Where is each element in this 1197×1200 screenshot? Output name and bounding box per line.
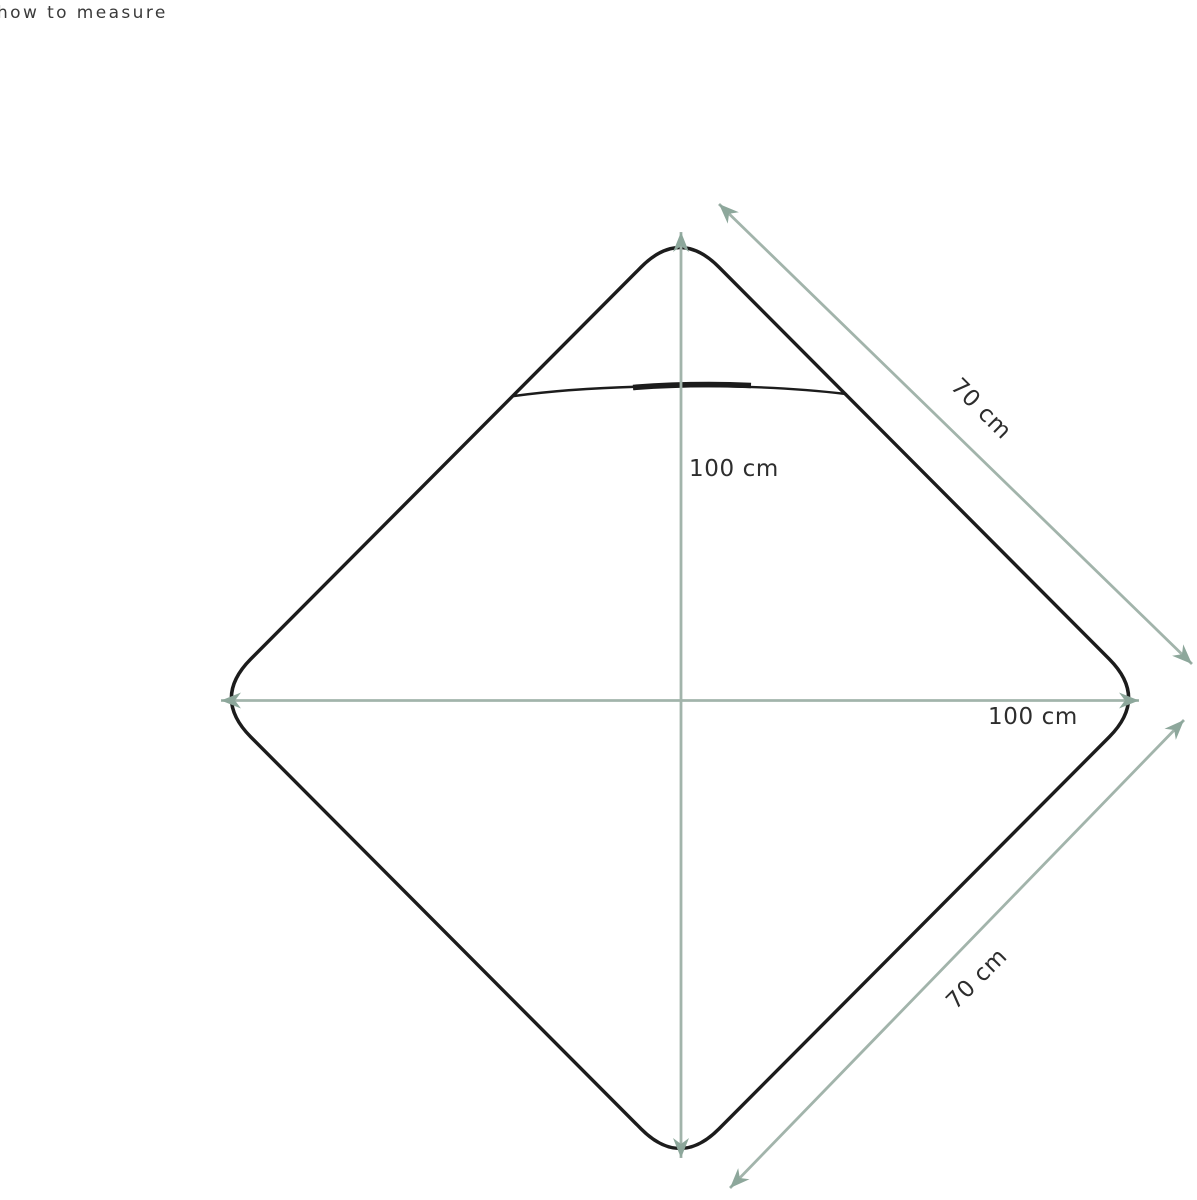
measurement-diagram-svg	[0, 0, 1197, 1200]
how-to-measure-diagram: how to measure 100 cm 100 cm 70 cm 70 cm	[0, 0, 1197, 1200]
horizontal-dimension-label: 100 cm	[988, 704, 1078, 730]
diagonal-bottom-dimension-arrow	[730, 720, 1184, 1188]
vertical-dimension-label: 100 cm	[689, 456, 779, 482]
hood-seam-thick-segment	[633, 385, 751, 388]
diagonal-top-dimension-arrow	[719, 204, 1192, 664]
